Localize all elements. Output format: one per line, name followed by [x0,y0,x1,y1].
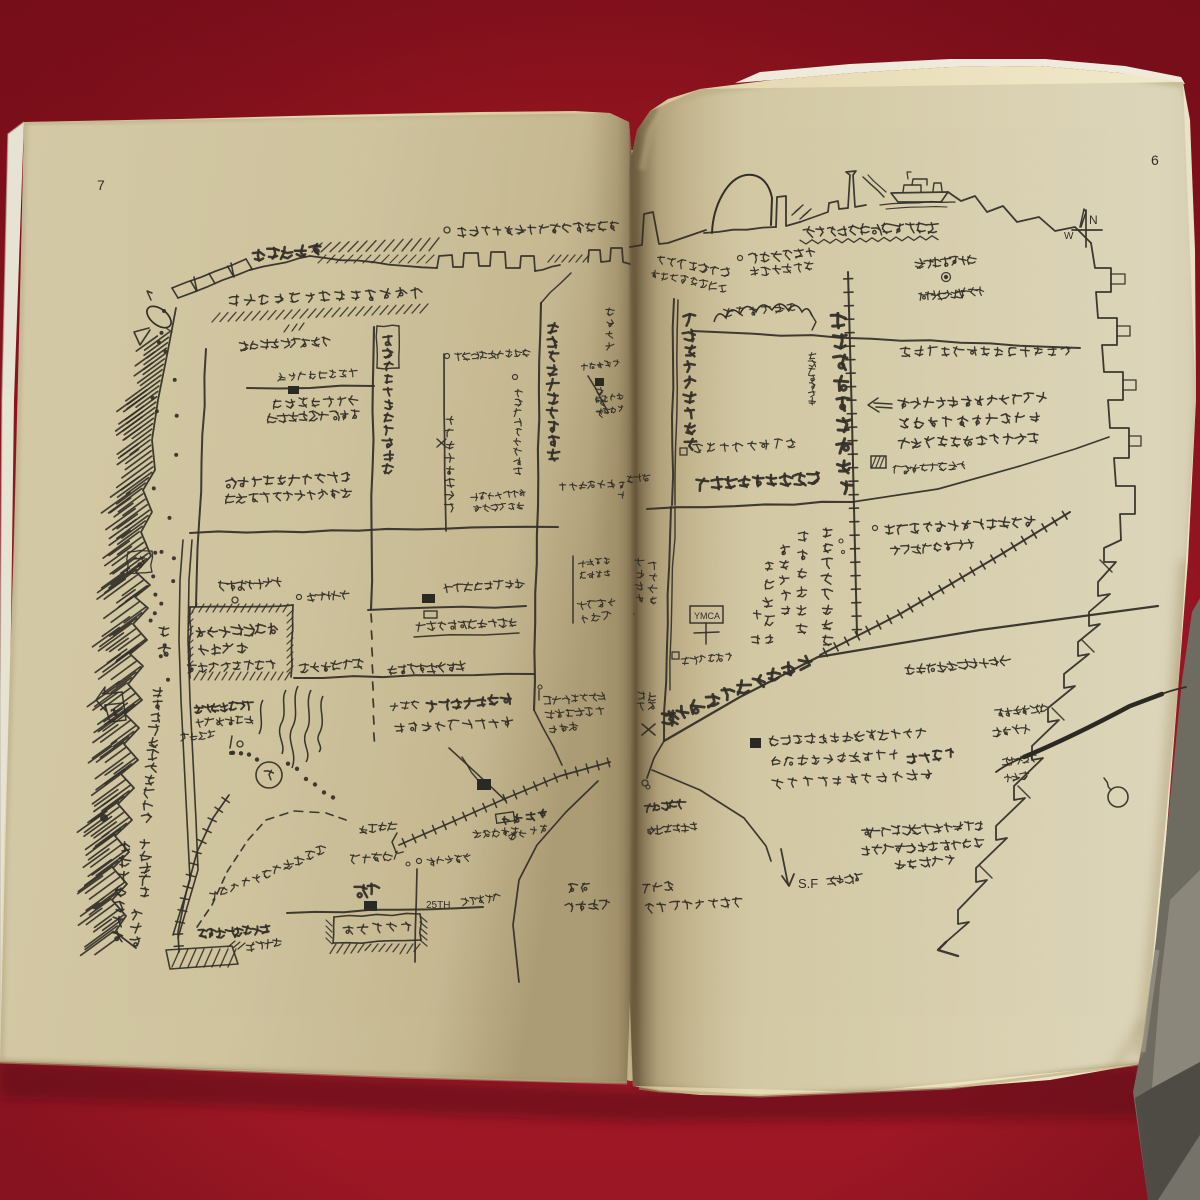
svg-text:7: 7 [97,177,105,193]
svg-text:': ' [633,612,635,623]
svg-text:S.F: S.F [798,876,818,891]
svg-text:N: N [1089,213,1098,227]
svg-text:YMCA: YMCA [694,611,720,621]
svg-text:6: 6 [1151,152,1159,168]
svg-text:W: W [1064,231,1074,242]
